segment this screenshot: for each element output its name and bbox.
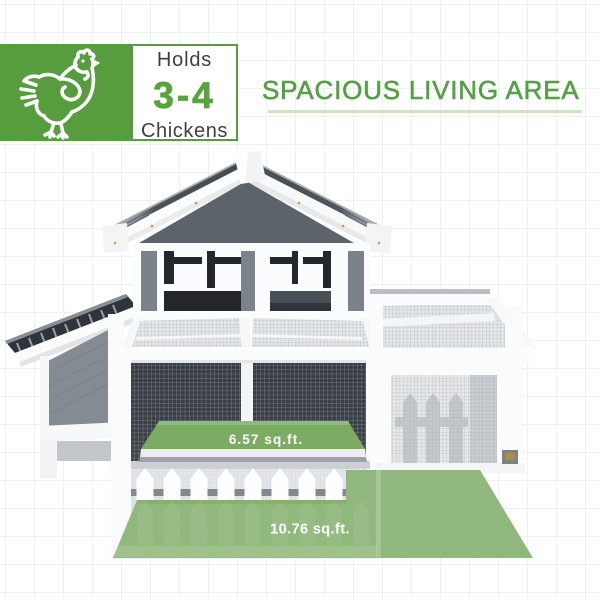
svg-text:6.57 sq.ft.: 6.57 sq.ft. bbox=[229, 432, 303, 447]
svg-text:10.76 sq.ft.: 10.76 sq.ft. bbox=[270, 522, 350, 538]
